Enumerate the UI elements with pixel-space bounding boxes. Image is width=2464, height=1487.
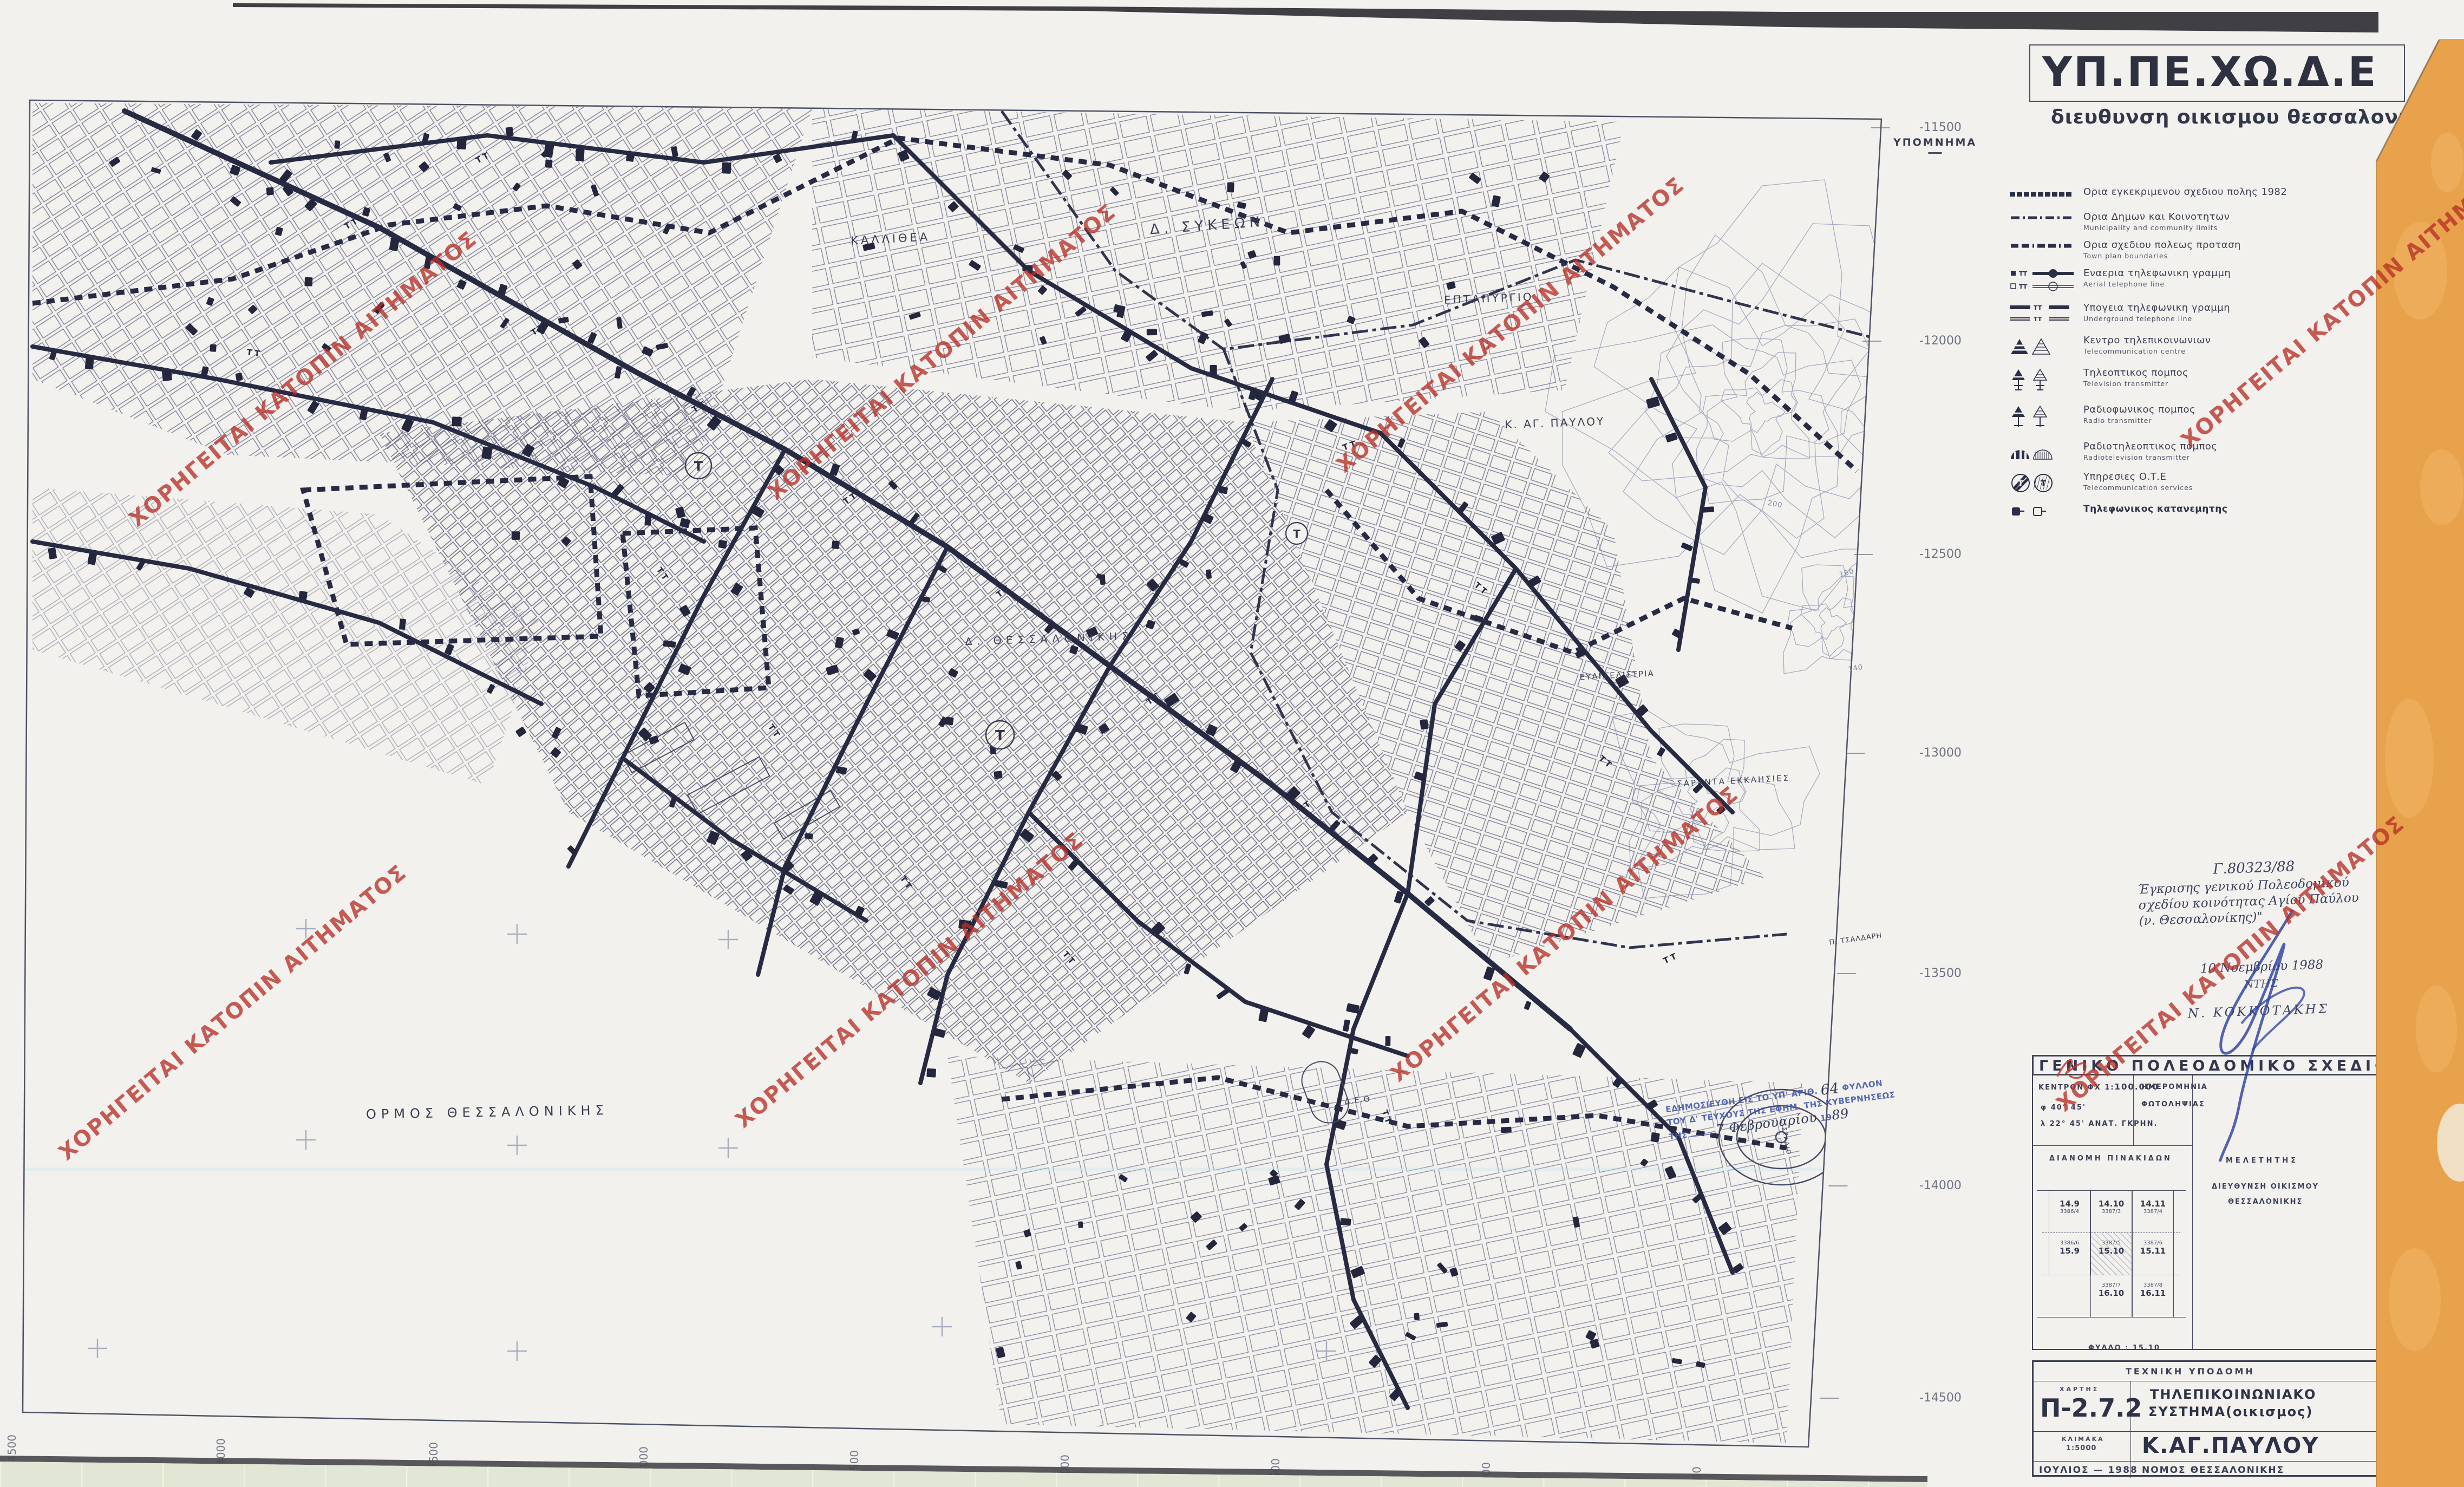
legend-symbol-b1982 <box>2010 187 2076 204</box>
sheet-cell-ref: 3387/4 <box>2133 1209 2173 1215</box>
legend-symbol-town <box>2010 240 2076 253</box>
svg-text:T: T <box>1293 527 1300 540</box>
legend-symbol-under: TTTT <box>2010 303 2076 327</box>
legend-item: TTΥπηρεσιες Ο.Τ.ΕTelecommunication servi… <box>2010 471 2367 496</box>
sheet-index-cell: 14.113387/4 <box>2132 1190 2174 1232</box>
sheet-index-cell: 3386/615.9 <box>2049 1232 2090 1275</box>
sheet-index-cell: 3387/515.10 <box>2090 1232 2132 1275</box>
department-subtitle: διευθυνση οικισμου θεσσαλονικη <box>2051 106 2435 128</box>
sheet-cell-ref: 3386/6 <box>2049 1240 2090 1246</box>
longitude: λ 22° 45' ΑΝΑΤ. ΓΚΡΗΝ. <box>2041 1120 2158 1128</box>
sheet-cell-ref: 3386/4 <box>2049 1209 2090 1215</box>
sheet-cell-number: 15.10 <box>2091 1246 2132 1256</box>
legend-label-en: Radiotelevision transmitter <box>2083 453 2217 461</box>
scale-label: ΚΛΙΜΑΚΑ <box>2062 1436 2104 1443</box>
legend-label-en: Municipality and community limits <box>2083 224 2230 232</box>
svg-text:TT: TT <box>2034 304 2042 311</box>
sheet-cell-ref: 3387/6 <box>2133 1240 2173 1246</box>
issue-date: ΙΟΥΛΙΟΣ — 1988 <box>2039 1465 2138 1476</box>
sheet-cell-ref: 3387/5 <box>2091 1240 2132 1246</box>
sheet-cell-number: 14.9 <box>2049 1199 2090 1209</box>
map-code: Π-2.7.2 <box>2040 1393 2142 1423</box>
scale-value: 1:5000 <box>2066 1444 2096 1452</box>
sheet-cell-number: 16.10 <box>2091 1288 2132 1298</box>
legend-label-en: Telecommunication centre <box>2083 347 2211 355</box>
legend-symbol-ote: TT <box>2010 472 2076 496</box>
legend-label-en: Radio transmitter <box>2083 416 2195 425</box>
svg-text:T: T <box>995 728 1005 744</box>
sheet-index-cell: 14.103387/3 <box>2090 1190 2132 1232</box>
sheet-index-grid: 14.93386/414.103387/314.113387/43386/615… <box>2049 1190 2174 1317</box>
grid-label-right: -13000 <box>1919 746 1962 760</box>
legend-item: Τηλεοπτικος πομποςTelevision transmitter <box>2010 367 2367 396</box>
legend-label-el: Κεντρο τηλεπικοινωνιων <box>2083 335 2211 346</box>
map-label: Κ. ΑΓ. ΠΑΥΛΟΥ <box>1505 415 1605 431</box>
legend-label-en: Aerial telephone line <box>2083 280 2231 288</box>
legend-label-en: Town plan boundaries <box>2083 252 2241 260</box>
legend-label-el: Τηλεφωνικος κατανεμητης <box>2083 504 2227 514</box>
map-label: 160 <box>1839 568 1855 579</box>
legend-symbol-aerial: TTTT <box>2010 269 2076 295</box>
titleblock-lower: ΤΕΧΝΙΚΗ ΥΠΟΔΟΜΗ ΧΑΡΤΗΣ Π-2.7.2 ΤΗΛΕΠΙΚΟΙ… <box>2032 1360 2411 1477</box>
sheet-cell-number: 15.9 <box>2049 1246 2090 1256</box>
svg-text:TT: TT <box>2019 270 2028 277</box>
ministry-title: ΥΠ.ΠΕ.ΧΩ.Δ.Ε <box>2042 48 2378 96</box>
scan-top-strip <box>233 3 2378 32</box>
sheet-cell-number: 14.10 <box>2091 1199 2132 1209</box>
system-title1: ΤΗΛΕΠΙΚΟΙΝΩΝΙΑΚΟ <box>2150 1387 2316 1402</box>
legend-label-el: Υπογεια τηλεφωνικη γραμμη <box>2083 302 2230 314</box>
system-title2: ΣΥΣΤΗΜΑ(οικισμος) <box>2148 1404 2313 1419</box>
stamp-line3: ΤΗΣ <box>1669 1130 1688 1142</box>
legend-label-el: Εναερια τηλεφωνικη γραμμη <box>2083 268 2231 279</box>
prefecture: ΝΟΜΟΣ ΘΕΣΣΑΛΟΝΙΚΗΣ <box>2142 1465 2284 1476</box>
sheet-cell-number: 16.11 <box>2133 1288 2173 1298</box>
legend-label-el: Ραδιοφωνικος πομπος <box>2083 404 2195 415</box>
svg-text:TT: TT <box>2019 283 2028 290</box>
legend-item: Ορια Δημων και ΚοινοτητωνMunicipality an… <box>2010 211 2367 232</box>
legend-symbol-tv <box>2010 368 2076 396</box>
sheet-number: ΦΥΛΛΟ : 15.10 <box>2088 1344 2160 1352</box>
legend-symbol-muni <box>2010 212 2076 225</box>
consultant-name2: ΘΕΣΣΑΛΟΝΙΚΗΣ <box>2228 1198 2303 1206</box>
legend-label-en: Underground telephone line <box>2083 315 2230 323</box>
svg-text:T: T <box>2041 479 2047 488</box>
legend-item: Ορια εγκεκριμενου σχεδιου πολης 1982 <box>2010 186 2367 204</box>
legend-label-en: Telecommunication services <box>2083 484 2193 492</box>
grid-label-right: -14500 <box>1919 1391 1962 1405</box>
legend-symbol-radio <box>2010 405 2076 433</box>
sheet-cell-number: 14.11 <box>2133 1199 2173 1209</box>
grid-label-right: -11500 <box>1919 121 1962 134</box>
legend-label-el: Τηλεοπτικος πομπος <box>2083 367 2188 379</box>
sheet-index-title: ΔΙΑΝΟΜΗ ΠΙΝΑΚΙΔΩΝ <box>2049 1155 2172 1163</box>
grid-label-right: -12500 <box>1919 547 1962 561</box>
grid-label-right: -13500 <box>1919 967 1962 980</box>
grid-label-right: -12000 <box>1919 334 1962 348</box>
legend: Ορια εγκεκριμενου σχεδιου πολης 1982Ορια… <box>2010 186 2367 529</box>
legend-item: Τηλεφωνικος κατανεμητης <box>2010 504 2367 521</box>
stamp-year-handwritten: 89 <box>1831 1106 1850 1123</box>
legend-label-el: Υπηρεσιες Ο.Τ.Ε <box>2083 471 2193 482</box>
map-label: 200 <box>1767 499 1783 510</box>
stamp-issue-number: 64 <box>1820 1080 1840 1099</box>
grid-label-right: -14000 <box>1919 1179 1962 1192</box>
map-label: 140 <box>1847 663 1864 674</box>
sheet-index-cell: 14.93386/4 <box>2049 1190 2090 1232</box>
tt-mark: TT <box>1662 950 1680 966</box>
sheet-index-cell: 3387/716.10 <box>2090 1275 2132 1317</box>
legend-item: Ορια σχεδιου πολεως προτασηTown plan bou… <box>2010 239 2367 260</box>
technical-infrastructure: ΤΕΧΝΙΚΗ ΥΠΟΔΟΜΗ <box>2126 1366 2255 1377</box>
sheet-index-cell: 3387/816.11 <box>2132 1275 2174 1317</box>
legend-item: TTTTΕναερια τηλεφωνικη γραμμηAerial tele… <box>2010 268 2367 295</box>
stamp-blank <box>1690 1126 1714 1137</box>
legend-symbol-centre <box>2010 336 2076 360</box>
svg-text:T: T <box>2018 479 2024 488</box>
legend-label-el: Ορια Δημων και Κοινοτητων <box>2083 211 2230 223</box>
legend-label-el: Ορια εγκεκριμενου σχεδιου πολης 1982 <box>2083 186 2287 198</box>
scanned-map-sheet: T T T -11500-12000-12500-13000-13500-140… <box>0 0 2464 1487</box>
svg-text:TT: TT <box>2034 316 2042 323</box>
map-label: ΟΡΜΟΣ ΘΕΣΣΑΛΟΝΙΚΗΣ <box>366 1103 609 1122</box>
map-label: ΧΑΡΤΗΣ <box>2060 1386 2099 1393</box>
legend-title: ΥΠΟΜΝΗΜΑ <box>1893 136 1977 154</box>
sheet-cell-ref: 3387/7 <box>2091 1282 2132 1288</box>
legend-symbol-rtv <box>2010 442 2076 464</box>
legend-label-en: Television transmitter <box>2083 380 2188 388</box>
svg-text:T: T <box>694 459 703 474</box>
sheet-cell-ref: 3387/8 <box>2133 1282 2173 1288</box>
legend-label-el: Ορια σχεδιου πολεως προταση <box>2083 239 2241 251</box>
sheet-cell-number: 15.11 <box>2133 1246 2173 1256</box>
area-name: Κ.ΑΓ.ΠΑΥΛΟΥ <box>2142 1433 2319 1458</box>
sheet-cell-ref: 3387/3 <box>2091 1209 2132 1215</box>
stamp-year-printed: 19 <box>1820 1112 1833 1124</box>
sheet-index-cell: 3387/615.11 <box>2132 1232 2174 1275</box>
legend-symbol-dist <box>2010 505 2076 521</box>
